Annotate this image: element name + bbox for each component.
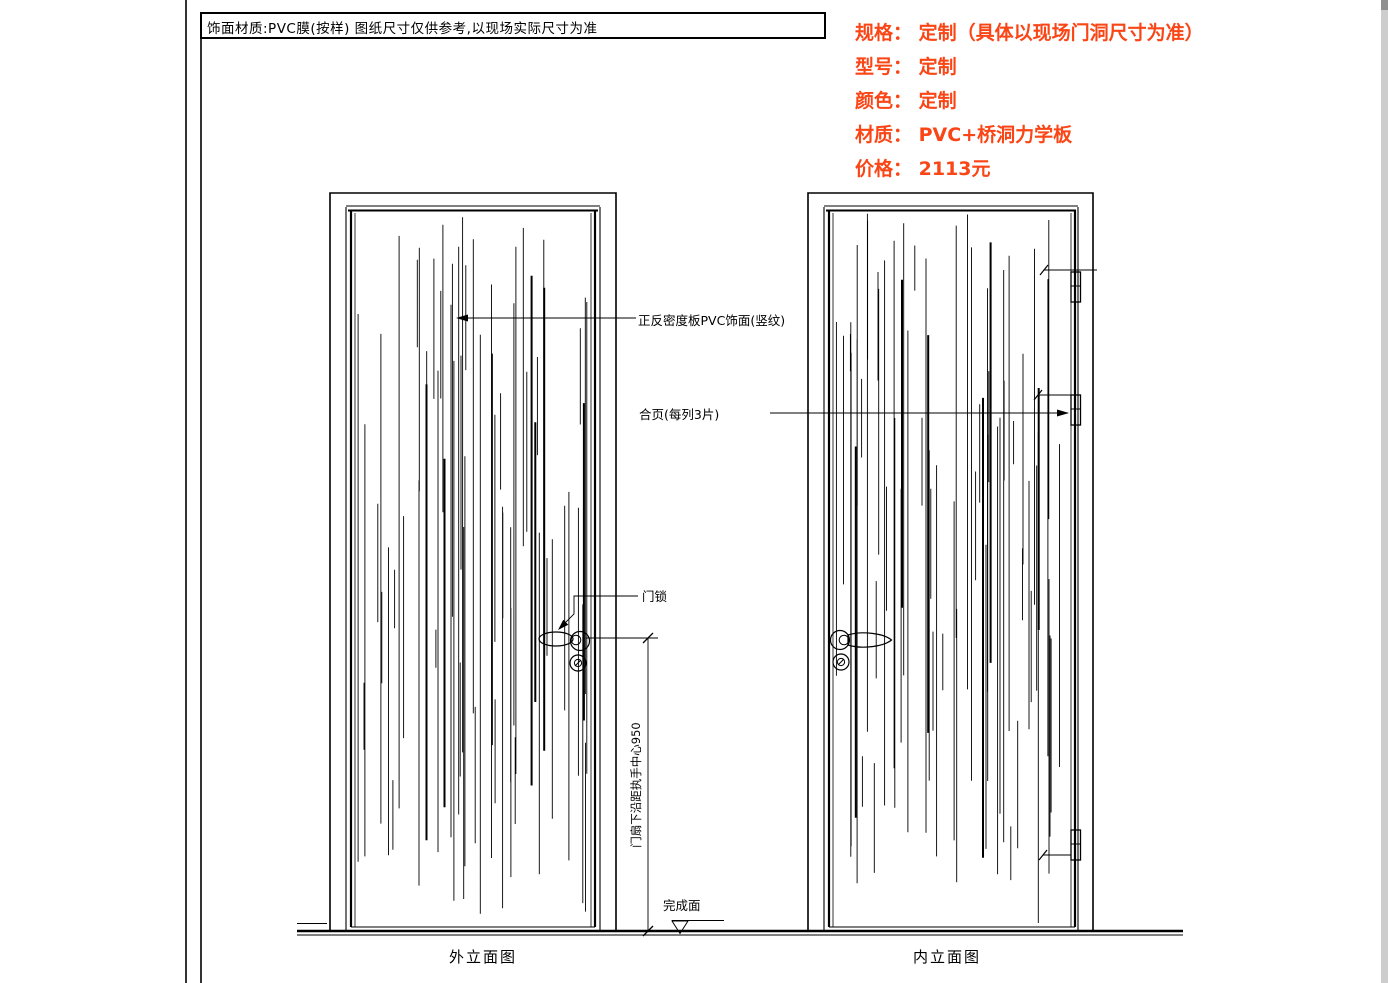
door-grain-texture: [358, 217, 587, 913]
note-door-lock: 门锁: [642, 586, 667, 605]
spec-price: 价格： 2113元: [855, 152, 1204, 186]
note-finish-surface: 完成面: [663, 895, 701, 914]
drawing-canvas: 饰面材质:PVC膜(按样) 图纸尺寸仅供参考,以现场实际尺寸为准 规格： 定制（…: [0, 0, 1388, 983]
spec-material: 材质： PVC+桥洞力学板: [855, 118, 1204, 152]
door-handle-right: [831, 631, 892, 671]
interior-door-elevation: [808, 193, 1097, 932]
sheet-border-lines: [186, 0, 825, 983]
note-hinge: 合页(每列3片): [639, 404, 719, 423]
note-pvc-finish: 正反密度板PVC饰面(竖纹): [638, 310, 785, 329]
label-interior-elevation: 内立面图: [913, 946, 981, 967]
vertical-scrollbar-thumb[interactable]: [1381, 0, 1388, 10]
title-note: 饰面材质:PVC膜(按样) 图纸尺寸仅供参考,以现场实际尺寸为准: [207, 17, 597, 37]
dimension-950: [586, 633, 658, 936]
door-grain-texture: [836, 214, 1059, 923]
spec-size: 规格： 定制（具体以现场门洞尺寸为准）: [855, 16, 1204, 50]
spec-model: 型号： 定制: [855, 50, 1204, 84]
arrowhead-left: [456, 315, 468, 322]
arrowhead-right: [1057, 410, 1069, 417]
ground-line: [297, 924, 1183, 936]
spec-color: 颜色： 定制: [855, 84, 1204, 118]
leader-lines: [456, 315, 1069, 631]
label-exterior-elevation: 外立面图: [449, 946, 517, 967]
exterior-door-elevation: [330, 193, 616, 932]
spec-list: 规格： 定制（具体以现场门洞尺寸为准） 型号： 定制 颜色： 定制 材质： PV…: [855, 16, 1204, 186]
dim-handle-height-text: 门扇下沿距执手中心950: [628, 710, 644, 860]
vertical-scrollbar-track[interactable]: [1381, 0, 1388, 983]
hinges: [1034, 265, 1097, 860]
